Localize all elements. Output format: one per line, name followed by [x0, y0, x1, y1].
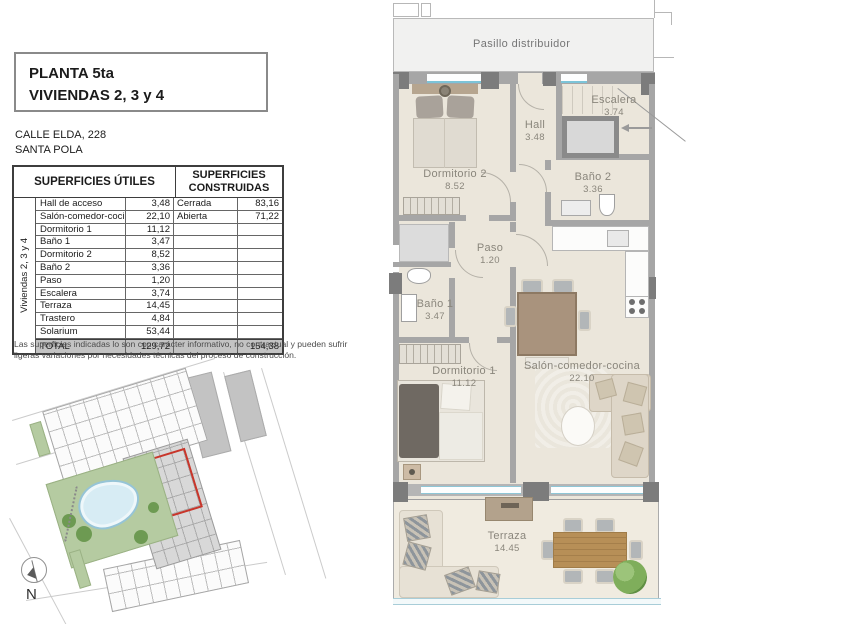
room-label-bano1: Baño 13.47 — [417, 297, 454, 324]
toilet-bano1 — [407, 268, 431, 284]
table-row: Hall de acceso3,48Cerrada83,16 — [36, 198, 282, 211]
terrace-sideboard — [485, 497, 533, 521]
cell-cname — [174, 224, 238, 236]
burner — [639, 308, 645, 314]
room-name: Salón-comedor-cocina — [524, 360, 640, 372]
cell-cname — [174, 236, 238, 248]
cell-cvalue — [238, 249, 282, 261]
cell-value: 14,45 — [126, 300, 174, 312]
wall-dorm1-north — [393, 337, 469, 343]
wall-bano2-west — [545, 160, 551, 170]
room-label-terraza: Terraza14.45 — [488, 529, 527, 556]
table-row: Solarium53,44 — [36, 326, 282, 339]
cell-cvalue: 83,16 — [238, 198, 282, 210]
terrace-chair — [563, 518, 583, 533]
wardrobe-dormitorio1 — [399, 344, 461, 364]
table-row: Baño 23,36 — [36, 262, 282, 275]
table-row: Baño 13,47 — [36, 236, 282, 249]
room-name: Baño 2 — [575, 171, 612, 183]
room-label-hall: Hall3.48 — [525, 118, 545, 145]
disclaimer: Las superficies indicadas lo son con car… — [14, 339, 347, 361]
room-label-dormitorio2: Dormitorio 28.52 — [423, 167, 487, 194]
cell-name: Paso — [36, 275, 126, 287]
address-line-2: SANTA POLA — [15, 143, 106, 158]
terrace-table — [553, 532, 627, 568]
disclaimer-line-2: ligeras variaciones por necesidades técn… — [14, 350, 347, 361]
cell-name: Hall de acceso — [36, 198, 126, 210]
cell-cvalue — [238, 262, 282, 274]
terrace-chair — [595, 569, 615, 584]
terrace-chair — [629, 540, 643, 560]
pillar — [393, 482, 408, 502]
kitchen-counter-top — [552, 226, 649, 251]
construction-line — [393, 3, 419, 17]
title-line-2: VIVIENDAS 2, 3 y 4 — [29, 85, 266, 107]
room-area: 3.74 — [591, 107, 636, 119]
room-area: 8.52 — [423, 181, 487, 193]
bed1-dark-throw — [399, 384, 439, 458]
room-area: 3.48 — [525, 132, 545, 144]
coffee-table — [561, 406, 595, 446]
bed2-split — [444, 118, 445, 168]
cell-cname — [174, 262, 238, 274]
cell-name: Dormitorio 1 — [36, 224, 126, 236]
cell-value: 3,36 — [126, 262, 174, 274]
room-area: 11.12 — [432, 378, 496, 390]
room-label-bano2: Baño 23.36 — [575, 170, 612, 197]
room-area: 14.45 — [488, 543, 527, 555]
cell-cvalue — [238, 313, 282, 325]
door-opening-entrance — [518, 73, 542, 84]
wall-bano2-west — [545, 192, 551, 222]
table-header: SUPERFICIES ÚTILES SUPERFICIES CONSTRUID… — [14, 167, 282, 198]
cell-value: 4,84 — [126, 313, 174, 325]
bed2-pillow — [446, 95, 474, 118]
wall-bano1-north — [393, 262, 451, 267]
bed2-mattress — [413, 118, 477, 168]
cell-cname — [174, 326, 238, 338]
shower-bano1 — [399, 224, 449, 262]
room-name: Dormitorio 2 — [423, 168, 487, 180]
room-area: 22.10 — [524, 373, 640, 385]
title-box: PLANTA 5ta VIVIENDAS 2, 3 y 4 — [14, 52, 268, 112]
cell-name: Dormitorio 2 — [36, 249, 126, 261]
table-rows: Hall de acceso3,48Cerrada83,16 Salón-com… — [36, 198, 282, 353]
cell-cvalue — [238, 300, 282, 312]
room-label-escalera: Escalera3.74 — [591, 93, 636, 120]
sofa-cushion — [621, 412, 644, 435]
surfaces-table: SUPERFICIES ÚTILES SUPERFICIES CONSTRUID… — [12, 165, 284, 355]
tree — [148, 502, 159, 513]
pillar — [389, 273, 402, 294]
room-area: 1.20 — [477, 255, 503, 267]
table-row: Salón-comedor-cocina22,10Abierta71,22 — [36, 211, 282, 224]
bed1-duvet — [439, 412, 483, 460]
table-side-label: Viviendas 2, 3 y 4 — [19, 238, 30, 313]
cell-name: Escalera — [36, 288, 126, 300]
room-area: 3.36 — [575, 184, 612, 196]
room-label-paso: Paso1.20 — [477, 241, 503, 268]
construction-line — [671, 12, 672, 25]
terrace-cushion — [475, 570, 500, 594]
cell-cvalue — [238, 224, 282, 236]
cell-cvalue — [238, 236, 282, 248]
cell-value: 53,44 — [126, 326, 174, 338]
room-name: Escalera — [591, 94, 636, 106]
window-terrace — [551, 486, 643, 494]
cell-value: 1,20 — [126, 275, 174, 287]
room-label-salon: Salón-comedor-cocina22.10 — [524, 359, 640, 386]
table-row: Dormitorio 111,12 — [36, 224, 282, 237]
wall-paso-west — [449, 222, 455, 248]
room-name: Hall — [525, 119, 545, 131]
wall-dorm2-hall — [510, 84, 516, 172]
cell-cvalue — [238, 275, 282, 287]
cell-value: 3,47 — [126, 236, 174, 248]
cell-value: 22,10 — [126, 211, 174, 223]
cell-value: 3,48 — [126, 198, 174, 210]
cell-value: 3,74 — [126, 288, 174, 300]
cell-value: 11,12 — [126, 224, 174, 236]
header-superficies-utiles: SUPERFICIES ÚTILES — [14, 167, 176, 197]
neighbor-building — [224, 370, 267, 443]
sink-bano2 — [561, 200, 591, 216]
window-terrace — [421, 486, 521, 494]
cell-name: Solarium — [36, 326, 126, 338]
window — [427, 74, 484, 83]
stair-arrow-stem — [628, 127, 652, 129]
construction-line — [654, 57, 674, 58]
table-body: Viviendas 2, 3 y 4 Hall de acceso3,48Cer… — [14, 198, 282, 353]
cell-name: Terraza — [36, 300, 126, 312]
cell-name: Baño 1 — [36, 236, 126, 248]
kitchen-sink — [607, 230, 629, 247]
sink-bano1 — [401, 294, 417, 322]
title-line-1: PLANTA 5ta — [29, 63, 266, 85]
room-name: Terraza — [488, 530, 527, 542]
pillar — [643, 482, 659, 502]
bed2-pillow — [415, 95, 443, 118]
construction-line — [654, 12, 672, 13]
toilet-bano2 — [599, 194, 615, 216]
cell-cname: Cerrada — [174, 198, 238, 210]
cell-cname — [174, 300, 238, 312]
cell-cname — [174, 288, 238, 300]
window — [561, 74, 587, 83]
tree — [134, 530, 148, 544]
stair-shaft — [562, 116, 619, 158]
cell-cname — [174, 275, 238, 287]
cell-value: 8,52 — [126, 249, 174, 261]
wall-paso-salon — [510, 222, 516, 232]
dining-chair — [504, 306, 517, 327]
burner — [629, 299, 635, 305]
room-label-pasillo: Pasillo distribuidor — [473, 38, 570, 50]
burner — [639, 299, 645, 305]
construction-line — [421, 3, 431, 17]
table-row: Terraza14,45 — [36, 300, 282, 313]
room-label-dormitorio1: Dormitorio 111.12 — [432, 364, 496, 391]
pillar — [543, 72, 556, 86]
tree — [76, 526, 92, 542]
cell-cvalue — [238, 326, 282, 338]
burner — [629, 308, 635, 314]
site-plan-map: N — [10, 368, 300, 614]
nightstand-plant — [409, 469, 415, 475]
cell-cvalue — [238, 288, 282, 300]
table-row: Paso1,20 — [36, 275, 282, 288]
room-name: Baño 1 — [417, 298, 454, 310]
header-superficies-construidas: SUPERFICIES CONSTRUIDAS — [176, 167, 282, 197]
table-row: Dormitorio 28,52 — [36, 249, 282, 262]
pillar — [481, 72, 499, 89]
construction-line — [654, 0, 655, 18]
terrace-chair — [563, 569, 583, 584]
wardrobe-dormitorio2 — [403, 197, 460, 215]
cell-name: Salón-comedor-cocina — [36, 211, 126, 223]
cell-cname — [174, 313, 238, 325]
wall-dorm1-salon — [510, 267, 516, 483]
compass-icon — [21, 557, 47, 583]
wall-dorm2-south — [489, 215, 516, 221]
cell-name: Trastero — [36, 313, 126, 325]
disclaimer-line-1: Las superficies indicadas lo son con car… — [14, 339, 347, 350]
room-name: Paso — [477, 242, 503, 254]
terrace-chair — [595, 518, 615, 533]
cell-cname — [174, 249, 238, 261]
table-row: Escalera3,74 — [36, 288, 282, 301]
cell-cname: Abierta — [174, 211, 238, 223]
address-line-1: CALLE ELDA, 228 — [15, 128, 106, 143]
room-area: 3.47 — [417, 311, 454, 323]
street-line — [261, 368, 326, 579]
address-block: CALLE ELDA, 228 SANTA POLA — [15, 128, 106, 158]
terrace-railing — [393, 598, 661, 605]
wall-dorm2-south — [393, 215, 466, 221]
terrace-sideboard-detail — [501, 503, 519, 508]
table-side-label-cell: Viviendas 2, 3 y 4 — [14, 198, 36, 353]
floorplan-document: { "doc": { "title_line1": "PLANTA 5ta", … — [0, 0, 850, 614]
table-row: Trastero4,84 — [36, 313, 282, 326]
terrace-cushion — [403, 514, 431, 542]
cell-name: Baño 2 — [36, 262, 126, 274]
terrace-plant — [613, 560, 647, 594]
dining-chair — [578, 310, 591, 331]
cell-cvalue: 71,22 — [238, 211, 282, 223]
dining-table — [517, 292, 577, 356]
compass-north-label: N — [26, 586, 37, 603]
room-name: Dormitorio 1 — [432, 365, 496, 377]
floor-plan: Pasillo distribuidor — [385, 0, 685, 614]
